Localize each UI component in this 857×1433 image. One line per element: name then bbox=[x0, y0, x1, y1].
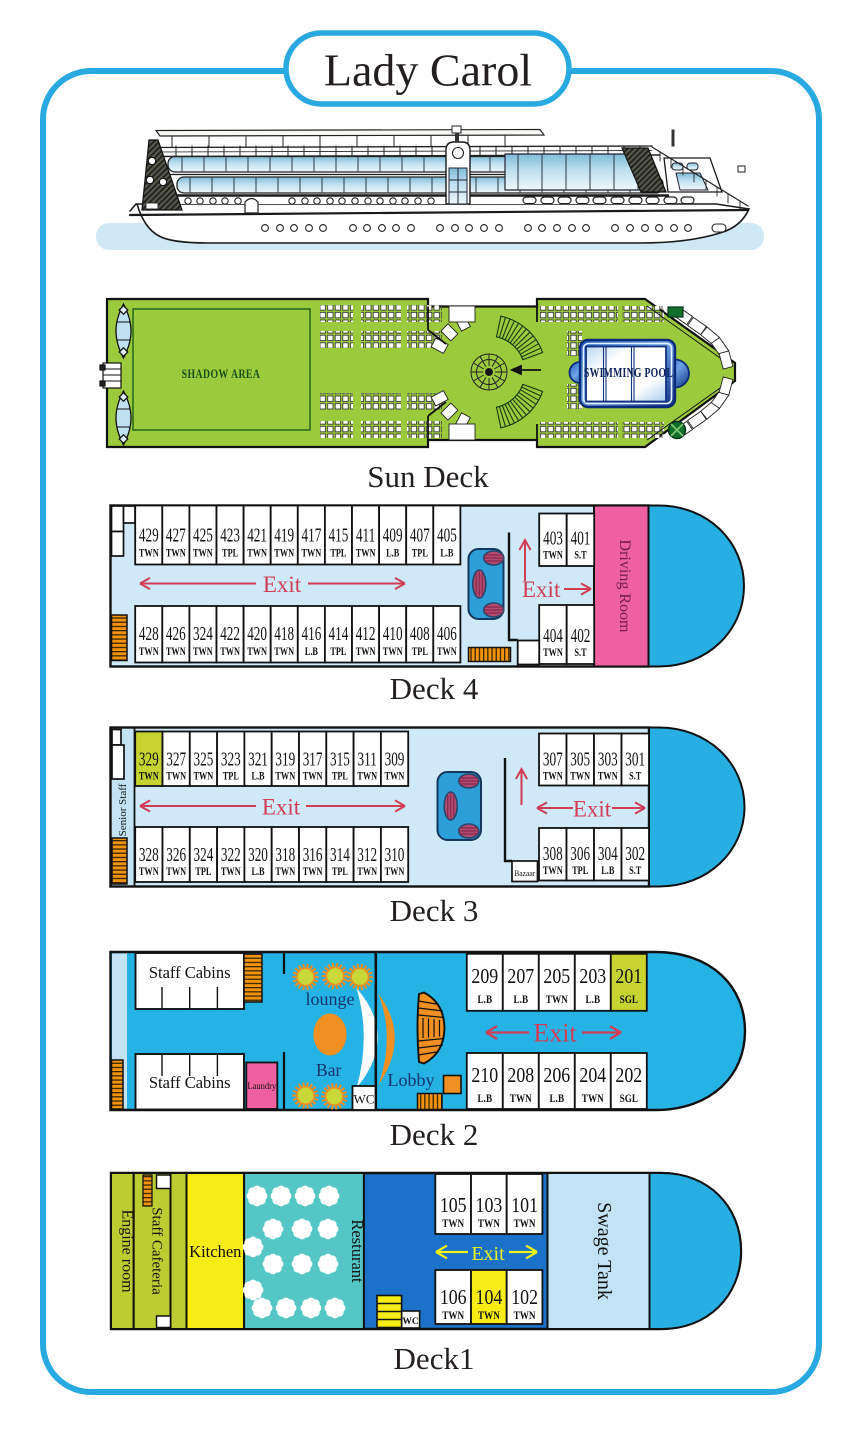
svg-text:L.B: L.B bbox=[251, 770, 264, 783]
svg-text:Lady Carol: Lady Carol bbox=[324, 45, 532, 96]
svg-text:S.T: S.T bbox=[629, 770, 641, 783]
svg-text:S.T: S.T bbox=[629, 865, 641, 878]
svg-text:TWN: TWN bbox=[442, 1218, 464, 1230]
svg-text:411: 411 bbox=[356, 524, 375, 546]
svg-text:Laundry: Laundry bbox=[247, 1081, 276, 1092]
svg-text:412: 412 bbox=[356, 622, 376, 644]
svg-text:305: 305 bbox=[570, 748, 590, 770]
svg-text:TWN: TWN bbox=[220, 646, 240, 659]
svg-text:204: 204 bbox=[579, 1065, 606, 1088]
svg-text:409: 409 bbox=[383, 524, 403, 546]
svg-text:WC: WC bbox=[354, 1092, 375, 1107]
svg-text:401: 401 bbox=[571, 527, 591, 549]
svg-text:317: 317 bbox=[303, 748, 323, 770]
svg-text:321: 321 bbox=[248, 748, 268, 770]
svg-text:L.B: L.B bbox=[478, 994, 493, 1006]
svg-text:203: 203 bbox=[579, 966, 606, 989]
svg-text:102: 102 bbox=[511, 1287, 538, 1310]
svg-text:SHADOW AREA: SHADOW AREA bbox=[182, 368, 261, 381]
svg-text:408: 408 bbox=[410, 622, 430, 644]
svg-text:210: 210 bbox=[471, 1065, 498, 1088]
svg-text:TPL: TPL bbox=[223, 770, 239, 783]
svg-text:TWN: TWN bbox=[598, 770, 618, 783]
svg-text:TWN: TWN bbox=[356, 547, 376, 560]
svg-text:TWN: TWN bbox=[247, 547, 267, 560]
svg-text:TWN: TWN bbox=[274, 547, 294, 560]
svg-text:320: 320 bbox=[248, 843, 268, 865]
svg-text:TWN: TWN bbox=[543, 770, 563, 783]
svg-text:L.B: L.B bbox=[478, 1093, 493, 1105]
svg-text:Lobby: Lobby bbox=[388, 1070, 435, 1090]
svg-text:TWN: TWN bbox=[582, 1093, 604, 1105]
svg-text:310: 310 bbox=[385, 843, 405, 865]
svg-text:TWN: TWN bbox=[221, 866, 241, 879]
svg-text:TPL: TPL bbox=[195, 866, 211, 879]
svg-text:TWN: TWN bbox=[139, 866, 159, 879]
svg-text:TWN: TWN bbox=[275, 866, 295, 879]
svg-text:Exit: Exit bbox=[533, 1019, 577, 1048]
svg-text:L.B: L.B bbox=[586, 994, 601, 1006]
svg-text:L.B: L.B bbox=[251, 866, 264, 879]
svg-text:328: 328 bbox=[139, 843, 159, 865]
svg-text:TWN: TWN bbox=[514, 1310, 536, 1322]
svg-text:L.B: L.B bbox=[550, 1093, 565, 1105]
svg-text:Kitchen: Kitchen bbox=[189, 1242, 241, 1261]
svg-text:lounge: lounge bbox=[306, 989, 355, 1009]
svg-text:TWN: TWN bbox=[193, 646, 213, 659]
svg-text:TPL: TPL bbox=[222, 547, 238, 560]
svg-text:326: 326 bbox=[166, 843, 186, 865]
svg-text:TWN: TWN bbox=[546, 994, 568, 1006]
svg-text:TWN: TWN bbox=[302, 547, 322, 560]
svg-text:308: 308 bbox=[543, 842, 563, 864]
svg-text:Resturant: Resturant bbox=[348, 1219, 367, 1283]
svg-text:312: 312 bbox=[357, 843, 377, 865]
svg-text:420: 420 bbox=[247, 622, 267, 644]
svg-text:WC: WC bbox=[402, 1317, 419, 1327]
svg-text:302: 302 bbox=[625, 842, 645, 864]
svg-text:SWIMMING POOL: SWIMMING POOL bbox=[584, 366, 673, 381]
svg-text:418: 418 bbox=[274, 622, 294, 644]
svg-text:TWN: TWN bbox=[385, 770, 405, 783]
svg-text:422: 422 bbox=[220, 622, 240, 644]
svg-text:208: 208 bbox=[507, 1065, 534, 1088]
svg-text:TWN: TWN bbox=[357, 866, 377, 879]
svg-text:209: 209 bbox=[471, 966, 498, 989]
svg-text:404: 404 bbox=[543, 624, 563, 646]
svg-text:TWN: TWN bbox=[437, 646, 457, 659]
svg-text:S.T: S.T bbox=[574, 647, 586, 660]
svg-text:TWN: TWN bbox=[543, 549, 563, 562]
svg-text:TPL: TPL bbox=[330, 547, 346, 560]
svg-text:301: 301 bbox=[625, 748, 645, 770]
svg-text:421: 421 bbox=[247, 524, 267, 546]
svg-text:414: 414 bbox=[329, 622, 349, 644]
svg-text:103: 103 bbox=[476, 1195, 503, 1218]
svg-text:Exit: Exit bbox=[573, 797, 612, 822]
svg-text:325: 325 bbox=[194, 748, 214, 770]
svg-text:428: 428 bbox=[139, 622, 159, 644]
svg-text:315: 315 bbox=[330, 748, 350, 770]
svg-text:TWN: TWN bbox=[166, 547, 186, 560]
svg-text:TWN: TWN bbox=[356, 646, 376, 659]
svg-text:SGL: SGL bbox=[620, 1093, 638, 1105]
svg-text:427: 427 bbox=[166, 524, 186, 546]
svg-text:403: 403 bbox=[543, 527, 563, 549]
svg-text:426: 426 bbox=[166, 622, 186, 644]
svg-text:201: 201 bbox=[615, 966, 642, 989]
svg-text:L.B: L.B bbox=[305, 646, 318, 659]
svg-text:TWN: TWN bbox=[478, 1218, 500, 1230]
svg-text:L.B: L.B bbox=[514, 994, 529, 1006]
svg-text:407: 407 bbox=[410, 524, 430, 546]
svg-text:L.B: L.B bbox=[601, 865, 614, 878]
svg-text:429: 429 bbox=[139, 524, 159, 546]
svg-text:TWN: TWN bbox=[247, 646, 267, 659]
svg-text:TPL: TPL bbox=[412, 646, 428, 659]
svg-text:Swage Tank: Swage Tank bbox=[593, 1202, 615, 1300]
svg-text:205: 205 bbox=[543, 966, 570, 989]
svg-text:TWN: TWN bbox=[193, 547, 213, 560]
svg-text:419: 419 bbox=[274, 524, 294, 546]
svg-text:TWN: TWN bbox=[166, 646, 186, 659]
svg-text:106: 106 bbox=[440, 1287, 467, 1310]
svg-text:324: 324 bbox=[193, 622, 213, 644]
svg-text:TWN: TWN bbox=[385, 866, 405, 879]
svg-text:TWN: TWN bbox=[303, 866, 323, 879]
svg-text:TPL: TPL bbox=[332, 866, 348, 879]
svg-text:TWN: TWN bbox=[543, 647, 563, 660]
svg-text:TWN: TWN bbox=[303, 770, 323, 783]
svg-text:S.T: S.T bbox=[574, 549, 586, 562]
svg-text:TWN: TWN bbox=[275, 770, 295, 783]
svg-text:Deck 2: Deck 2 bbox=[390, 1117, 479, 1152]
svg-text:323: 323 bbox=[221, 748, 241, 770]
svg-text:TWN: TWN bbox=[166, 866, 186, 879]
svg-text:202: 202 bbox=[615, 1065, 642, 1088]
svg-text:TWN: TWN bbox=[514, 1218, 536, 1230]
svg-text:207: 207 bbox=[507, 966, 534, 989]
svg-text:Senior Staff: Senior Staff bbox=[117, 783, 129, 836]
svg-text:TWN: TWN bbox=[194, 770, 214, 783]
svg-text:Exit: Exit bbox=[262, 795, 301, 820]
svg-text:TWN: TWN bbox=[274, 646, 294, 659]
svg-text:324: 324 bbox=[194, 843, 214, 865]
svg-text:TWN: TWN bbox=[383, 646, 403, 659]
svg-text:Sun Deck: Sun Deck bbox=[367, 459, 489, 494]
svg-text:405: 405 bbox=[437, 524, 457, 546]
svg-text:L.B: L.B bbox=[386, 547, 399, 560]
svg-text:101: 101 bbox=[511, 1195, 538, 1218]
svg-text:307: 307 bbox=[543, 748, 563, 770]
svg-text:309: 309 bbox=[385, 748, 405, 770]
svg-text:417: 417 bbox=[302, 524, 322, 546]
svg-text:Staff Cabins: Staff Cabins bbox=[149, 963, 231, 982]
svg-text:329: 329 bbox=[139, 748, 159, 770]
svg-text:Exit: Exit bbox=[263, 572, 302, 597]
svg-text:Deck 4: Deck 4 bbox=[390, 671, 479, 706]
svg-text:TWN: TWN bbox=[139, 646, 159, 659]
svg-text:TPL: TPL bbox=[332, 770, 348, 783]
svg-text:327: 327 bbox=[166, 748, 186, 770]
svg-text:Driving Room: Driving Room bbox=[616, 540, 633, 633]
svg-text:L.B: L.B bbox=[440, 547, 453, 560]
svg-text:322: 322 bbox=[221, 843, 241, 865]
svg-text:402: 402 bbox=[571, 624, 591, 646]
svg-text:TWN: TWN bbox=[166, 770, 186, 783]
svg-text:Deck 3: Deck 3 bbox=[390, 893, 479, 928]
svg-text:TWN: TWN bbox=[510, 1093, 532, 1105]
svg-text:TWN: TWN bbox=[139, 770, 159, 783]
svg-text:Bar: Bar bbox=[316, 1060, 341, 1080]
svg-text:Exit: Exit bbox=[522, 577, 561, 602]
svg-text:TWN: TWN bbox=[570, 770, 590, 783]
svg-text:SGL: SGL bbox=[620, 994, 638, 1006]
svg-text:423: 423 bbox=[220, 524, 240, 546]
svg-text:318: 318 bbox=[275, 843, 295, 865]
svg-text:Deck1: Deck1 bbox=[394, 1341, 475, 1376]
svg-text:Staff Cafeteria: Staff Cafeteria bbox=[149, 1207, 165, 1295]
svg-text:105: 105 bbox=[440, 1195, 467, 1218]
svg-text:TWN: TWN bbox=[478, 1310, 500, 1322]
svg-text:306: 306 bbox=[570, 842, 590, 864]
svg-text:314: 314 bbox=[330, 843, 350, 865]
svg-text:311: 311 bbox=[358, 748, 377, 770]
svg-text:319: 319 bbox=[275, 748, 295, 770]
svg-text:104: 104 bbox=[476, 1287, 503, 1310]
svg-text:Bazaar: Bazaar bbox=[514, 869, 535, 879]
svg-text:TWN: TWN bbox=[357, 770, 377, 783]
svg-text:406: 406 bbox=[437, 622, 457, 644]
svg-text:316: 316 bbox=[303, 843, 323, 865]
svg-text:206: 206 bbox=[543, 1065, 570, 1088]
svg-text:TPL: TPL bbox=[330, 646, 346, 659]
svg-text:410: 410 bbox=[383, 622, 403, 644]
svg-text:TWN: TWN bbox=[543, 865, 563, 878]
svg-text:416: 416 bbox=[302, 622, 322, 644]
svg-text:TWN: TWN bbox=[442, 1310, 464, 1322]
svg-text:TWN: TWN bbox=[139, 547, 159, 560]
svg-text:303: 303 bbox=[598, 748, 618, 770]
svg-text:425: 425 bbox=[193, 524, 213, 546]
svg-text:TPL: TPL bbox=[572, 865, 588, 878]
svg-text:304: 304 bbox=[598, 842, 618, 864]
svg-text:TPL: TPL bbox=[412, 547, 428, 560]
svg-text:Exit: Exit bbox=[471, 1243, 505, 1265]
svg-text:415: 415 bbox=[329, 524, 349, 546]
